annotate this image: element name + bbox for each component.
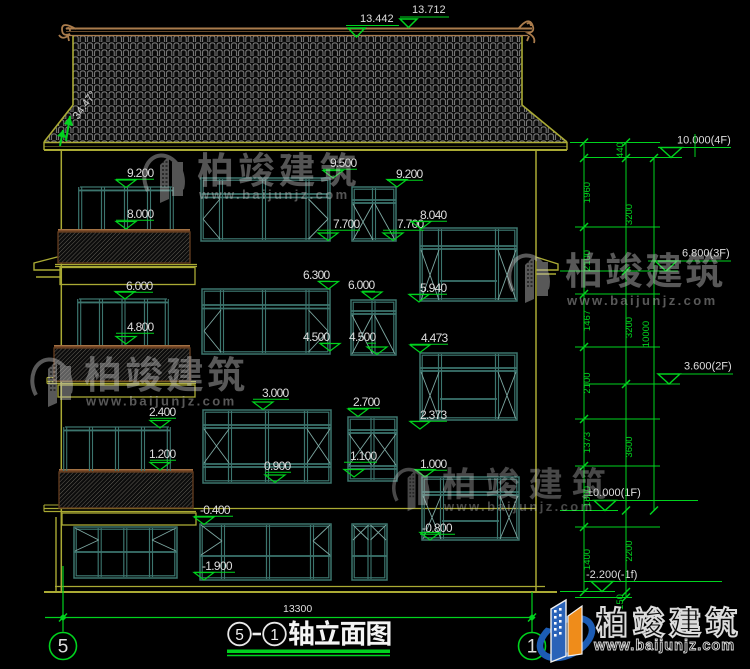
svg-text:13.712: 13.712 [412, 4, 446, 16]
svg-text:4.800: 4.800 [127, 320, 155, 334]
svg-text:www.baijunjz.com: www.baijunjz.com [85, 394, 237, 409]
svg-text:1400: 1400 [582, 549, 593, 570]
svg-text:1: 1 [270, 627, 279, 644]
svg-text:1.100: 1.100 [350, 449, 378, 463]
svg-text:2.700: 2.700 [353, 395, 381, 409]
svg-text:-1.900: -1.900 [202, 559, 233, 573]
svg-text:www.baijunjz.com: www.baijunjz.com [566, 293, 718, 308]
svg-text:3.000: 3.000 [262, 386, 290, 400]
svg-text:5.940: 5.940 [420, 281, 448, 295]
svg-text:10.000(4F): 10.000(4F) [677, 135, 731, 147]
svg-text:3200: 3200 [624, 317, 635, 338]
svg-text:-2.200(-1f): -2.200(-1f) [586, 569, 637, 581]
svg-text:2100: 2100 [582, 372, 593, 393]
svg-text:-0.400: -0.400 [200, 503, 231, 517]
svg-text:3600: 3600 [624, 436, 635, 457]
svg-text:13.442: 13.442 [360, 13, 394, 25]
svg-text:5: 5 [58, 637, 69, 658]
svg-text:1467: 1467 [582, 310, 593, 331]
svg-text:9.200: 9.200 [127, 166, 155, 180]
svg-text:3200: 3200 [624, 204, 635, 225]
svg-text:5: 5 [235, 627, 244, 644]
svg-text:7.700: 7.700 [333, 217, 361, 231]
svg-text:1960: 1960 [582, 182, 593, 203]
svg-text:10000: 10000 [641, 321, 652, 347]
svg-text:2200: 2200 [624, 540, 635, 561]
svg-text:www.baijunjz.com: www.baijunjz.com [198, 187, 350, 202]
svg-text:4.500: 4.500 [349, 330, 377, 344]
svg-text:8.040: 8.040 [420, 208, 448, 222]
svg-text:6.000: 6.000 [348, 278, 376, 292]
svg-text:1373: 1373 [582, 432, 593, 453]
svg-text:1.200: 1.200 [149, 447, 177, 461]
svg-text:13300: 13300 [283, 603, 312, 615]
svg-text:4.473: 4.473 [421, 331, 449, 345]
svg-text:3.600(2F): 3.600(2F) [684, 361, 732, 373]
svg-text:www.baijunjz.com: www.baijunjz.com [593, 638, 735, 654]
svg-text:6.300: 6.300 [303, 268, 331, 282]
svg-text:0.900: 0.900 [264, 459, 292, 473]
svg-text:8.000: 8.000 [127, 207, 155, 221]
svg-text:440: 440 [615, 142, 626, 158]
svg-text:www.baijunjz.com: www.baijunjz.com [443, 499, 595, 514]
svg-text:2.373: 2.373 [420, 408, 448, 422]
svg-text:1: 1 [527, 637, 538, 658]
svg-text:4.500: 4.500 [303, 330, 331, 344]
